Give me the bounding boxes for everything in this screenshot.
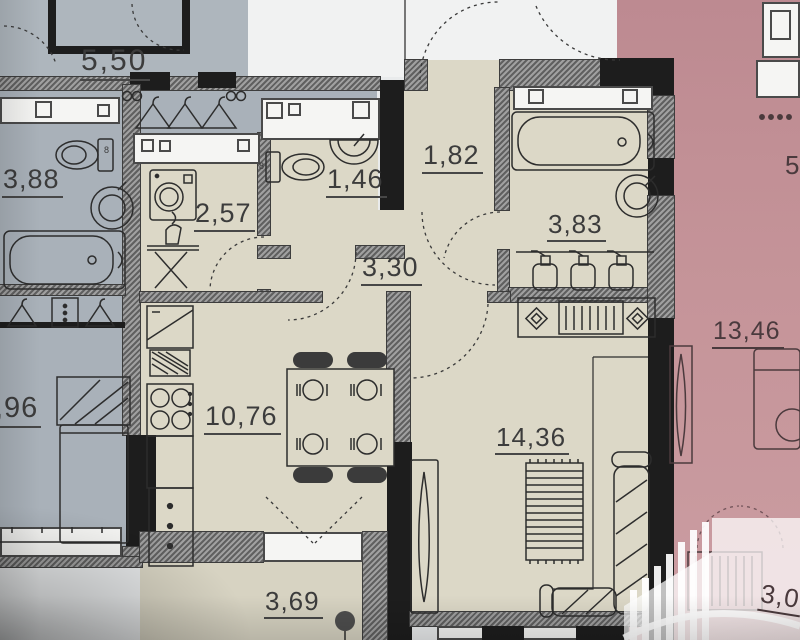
room-area-label-right-partial-top: 5, <box>784 152 800 181</box>
room-area-label-bathroom: 3,83 <box>547 211 606 242</box>
bathtub-icon <box>512 112 654 170</box>
floor-plan-photo: 5,50 3,88 ,96 2,57 1,46 1,82 3,83 3,30 1… <box>0 0 800 640</box>
shower-bottles-icon <box>516 251 654 290</box>
furniture-layer <box>0 0 800 640</box>
room-area-label-laundry: 2,57 <box>194 200 255 232</box>
wardrobe-icon <box>670 346 692 463</box>
room-area-label-right-partial-bottom: 3,0 <box>757 580 800 617</box>
room-area-label-wc: 1,46 <box>326 166 387 198</box>
toilet-icon <box>266 152 324 182</box>
kitchen-counter <box>147 436 193 488</box>
kitchen-sink-icon <box>150 350 190 376</box>
fridge-icon <box>147 306 193 348</box>
room-area-label-hall: 1,82 <box>422 142 483 174</box>
kitchen-cabinet <box>149 488 193 566</box>
room-area-label-kitchen-dining: 10,76 <box>204 403 281 435</box>
bed-icon <box>57 377 130 543</box>
room-area-label-bedroom-left-partial: ,96 <box>0 394 41 428</box>
room-area-label-right-room: 13,46 <box>712 319 784 349</box>
room-area-label-corridor-left: 5,50 <box>80 46 150 81</box>
dining-table-icon <box>287 352 394 483</box>
plant-icon <box>335 611 355 640</box>
room-area-label-corridor: 3,30 <box>361 254 422 286</box>
sink-icon <box>330 134 378 164</box>
hanger-icon <box>123 92 246 129</box>
stove-icon <box>147 384 193 436</box>
bathtub-icon <box>4 231 125 289</box>
hanger-icon <box>8 298 114 327</box>
room-area-label-bathroom-left: 3,88 <box>2 166 63 198</box>
room-area-label-balcony: 3,69 <box>264 588 323 619</box>
toilet-mark-left: 8 <box>104 146 109 155</box>
sink-icon <box>616 175 658 217</box>
toilet-mark-wc: 8 <box>259 162 264 171</box>
toilet-icon <box>56 139 113 171</box>
sideboard-icon <box>518 298 655 337</box>
tv-icon <box>411 460 438 613</box>
bed-icon <box>754 349 800 449</box>
sofa-icon <box>540 357 651 617</box>
ironing-board-icon <box>147 212 199 288</box>
rug-icon <box>526 459 583 564</box>
room-area-label-living: 14,36 <box>495 424 569 455</box>
sink-icon <box>91 182 133 229</box>
